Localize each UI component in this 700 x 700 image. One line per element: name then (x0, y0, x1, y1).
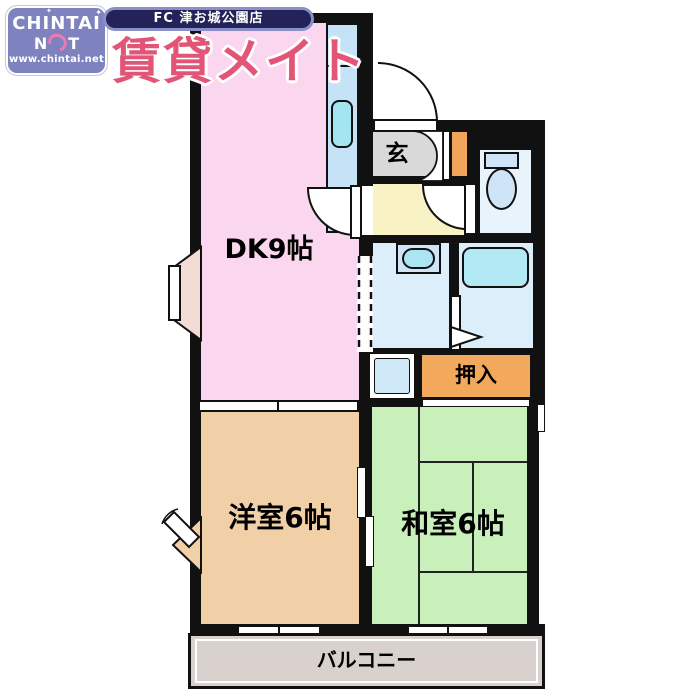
closet-label: 押入 (420, 364, 532, 386)
logo-net-line: NT (8, 34, 105, 51)
dk-room-label: DK9帖 (194, 236, 344, 264)
floorplan-page: DK9帖 玄 押入 洋室6帖 和室6帖 バルコニー CHINTAI NT www… (0, 0, 700, 700)
plan-symbols (0, 0, 700, 700)
genkan-label: 玄 (367, 142, 427, 166)
logo-wordmark: CHINTAI (8, 13, 105, 34)
brand-title: 賃貸メイト (112, 22, 367, 93)
western-room-label: 洋室6帖 (205, 503, 355, 532)
japanese-room-label: 和室6帖 (378, 509, 528, 538)
logo-e-swirl-icon (45, 30, 70, 54)
balcony-label: バルコニー (188, 650, 545, 671)
chintai-net-logo[interactable]: CHINTAI NT www.chintai.net (8, 8, 105, 73)
logo-url[interactable]: www.chintai.net (8, 54, 105, 65)
